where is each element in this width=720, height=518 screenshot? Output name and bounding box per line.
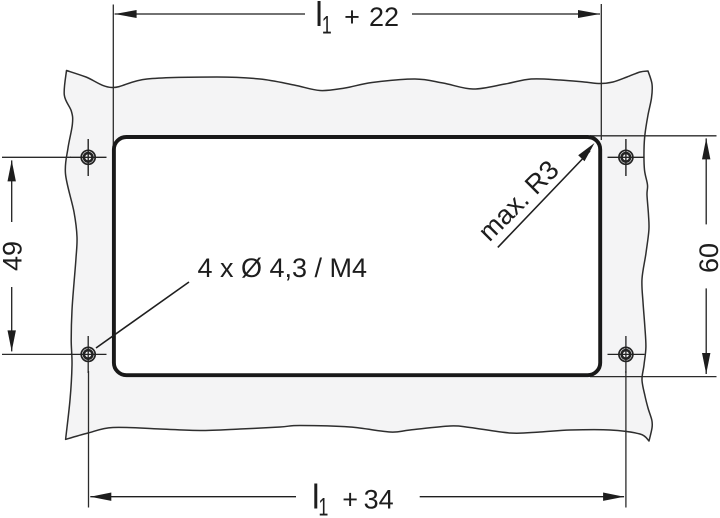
svg-text:22: 22 xyxy=(369,2,399,32)
svg-text:1: 1 xyxy=(318,493,328,518)
svg-text:49: 49 xyxy=(0,241,28,271)
svg-text:+: + xyxy=(344,2,360,32)
svg-text:1: 1 xyxy=(322,11,332,40)
svg-text:4 x Ø 4,3 / M4: 4 x Ø 4,3 / M4 xyxy=(198,253,368,283)
svg-text:34: 34 xyxy=(364,484,394,514)
svg-text:+: + xyxy=(342,484,358,514)
svg-text:60: 60 xyxy=(694,243,720,273)
